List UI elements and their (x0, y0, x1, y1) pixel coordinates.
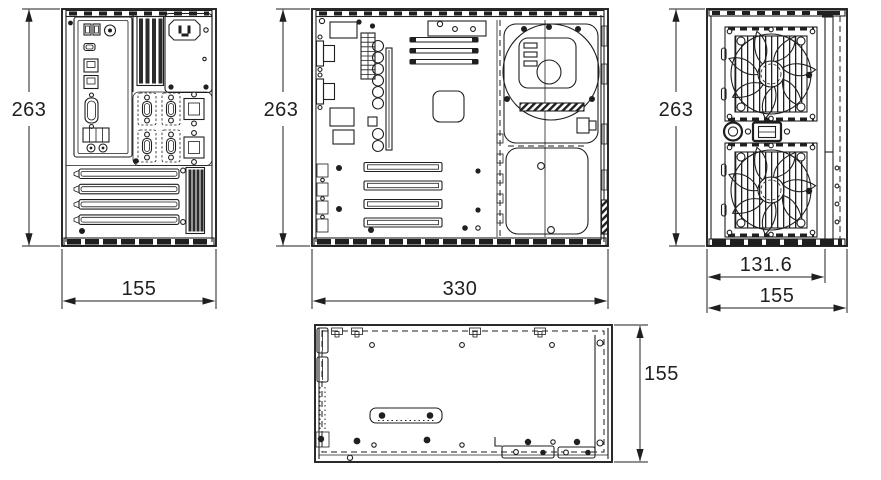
top-screws (319, 18, 475, 31)
side-width-dimension: 330 (312, 249, 608, 309)
cooling-fan-bottom (722, 143, 818, 237)
clip (332, 328, 343, 337)
slot-cover (74, 215, 179, 225)
rear-bottom-band (64, 238, 214, 246)
mounting-clips (332, 328, 546, 337)
rear-view: 263 155 (12, 9, 216, 309)
chassis-dimension-drawing: 263 155 (0, 0, 881, 480)
power-button (724, 123, 742, 141)
hdd-drive (503, 20, 599, 237)
clip (352, 328, 363, 337)
audio-jacks (87, 144, 107, 152)
lan-port (84, 59, 98, 72)
front-io-connector (753, 123, 790, 142)
panel-screw (745, 129, 750, 134)
io-vent (83, 128, 109, 142)
handle-plate (370, 408, 442, 423)
depth-label: 155 (644, 363, 679, 385)
side-view: 263 330 (264, 9, 608, 309)
side-height-dimension: 263 (264, 9, 310, 246)
left-rail (316, 328, 329, 447)
cooling-fan-top (722, 27, 818, 121)
right-rail (595, 335, 603, 452)
front-width-label: 155 (760, 285, 795, 307)
serial-port (138, 130, 156, 162)
capacitor-column (368, 41, 384, 152)
psu-area (165, 14, 212, 93)
lower-drive-bay (506, 146, 588, 234)
chassis-drawing-svg: 263 155 (0, 0, 881, 480)
bracket-box (330, 22, 357, 38)
ps2-port (105, 25, 116, 36)
power-inlet (169, 20, 200, 40)
front-height-dimension: 263 (659, 9, 705, 246)
square-connector (184, 131, 204, 165)
expansion-bracket-profile (317, 164, 374, 233)
side-top-band (316, 11, 604, 17)
side-bottom-band (314, 238, 606, 246)
front-bottom-band (709, 239, 845, 246)
clip (470, 328, 481, 337)
pci-slots (364, 163, 442, 228)
serial-port-plate (133, 92, 212, 166)
rear-bracket-profile (317, 35, 355, 144)
cpu-socket (433, 91, 464, 122)
rear-vent-grille (137, 17, 164, 86)
hdmi-port (84, 44, 95, 51)
serial-port (162, 93, 180, 125)
bottom-screw-row (347, 437, 580, 461)
vga-port (85, 93, 98, 129)
rear-width-dimension: 155 (62, 249, 216, 309)
front-height-label: 263 (659, 99, 694, 121)
depth-dimension: 155 (614, 325, 679, 462)
serial-port (162, 130, 180, 162)
slot-cover (74, 200, 179, 210)
lan-port-2 (84, 76, 98, 89)
slot-cover (74, 184, 179, 194)
ram-slots (410, 38, 478, 65)
top-latch (822, 11, 833, 18)
inner-dashed-border (322, 331, 604, 452)
riser-slot (386, 48, 392, 150)
front-view: 263 131.6 155 (659, 9, 847, 313)
mid-screws (462, 168, 480, 230)
screw-holes-top-row (370, 343, 555, 348)
clip (535, 328, 546, 337)
usb-ports (84, 24, 100, 35)
rear-height-dimension: 263 (12, 9, 60, 246)
side-width-label: 330 (443, 278, 478, 300)
fan-panel-width-label: 131.6 (740, 254, 793, 276)
hdd-connector-strip (520, 103, 584, 111)
square-connector (184, 92, 204, 126)
side-height-label: 263 (264, 99, 299, 121)
io-panel (68, 17, 132, 157)
side-case-outline (312, 9, 608, 246)
rear-side-vent (186, 168, 205, 234)
rear-width-label: 155 (122, 278, 157, 300)
serial-port (138, 93, 156, 125)
slot-cover (74, 169, 179, 179)
drive-bay-divider (497, 20, 503, 237)
rear-height-label: 263 (12, 99, 47, 121)
top-view: 155 (315, 325, 679, 462)
